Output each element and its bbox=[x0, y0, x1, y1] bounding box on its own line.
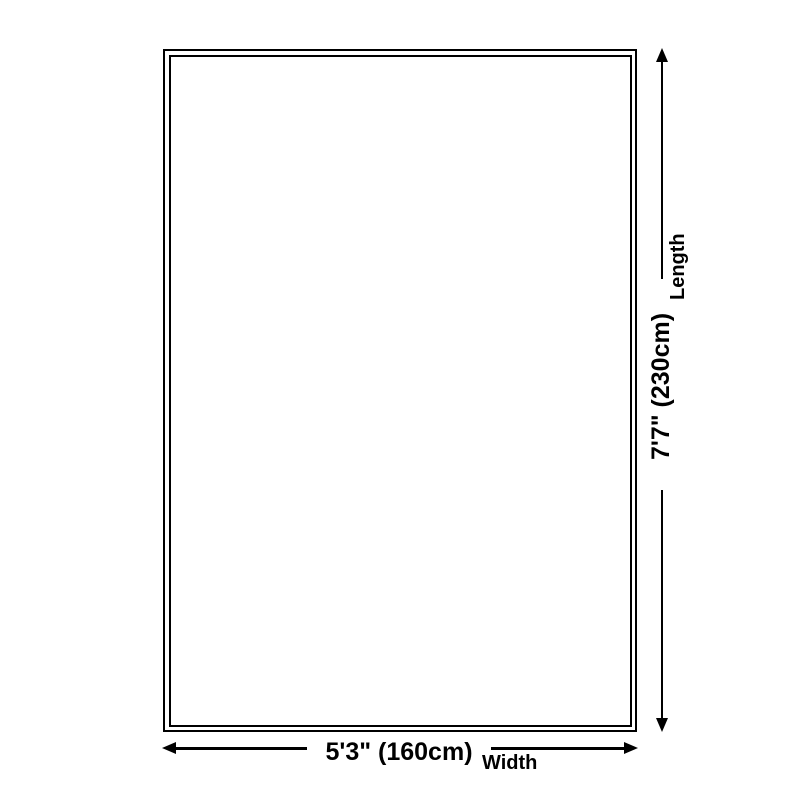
arrow-right-icon bbox=[624, 742, 638, 754]
length-dimension-line-bottom bbox=[661, 490, 664, 720]
rug-size-diagram: Length 7'7" (230cm) 5'3" (160cm) Width bbox=[0, 0, 800, 800]
width-label: Width bbox=[482, 753, 537, 773]
length-label: Length bbox=[667, 238, 689, 300]
width-dimension-line-left bbox=[174, 747, 307, 750]
width-value: 5'3" (160cm) bbox=[307, 737, 491, 767]
arrow-down-icon bbox=[656, 718, 668, 732]
length-value: 7'7" (230cm) bbox=[646, 310, 676, 462]
rug-outline bbox=[163, 49, 637, 732]
length-dimension-line-top bbox=[661, 60, 664, 279]
rug-inner-border bbox=[169, 55, 632, 727]
width-dimension-line-right bbox=[491, 747, 625, 750]
